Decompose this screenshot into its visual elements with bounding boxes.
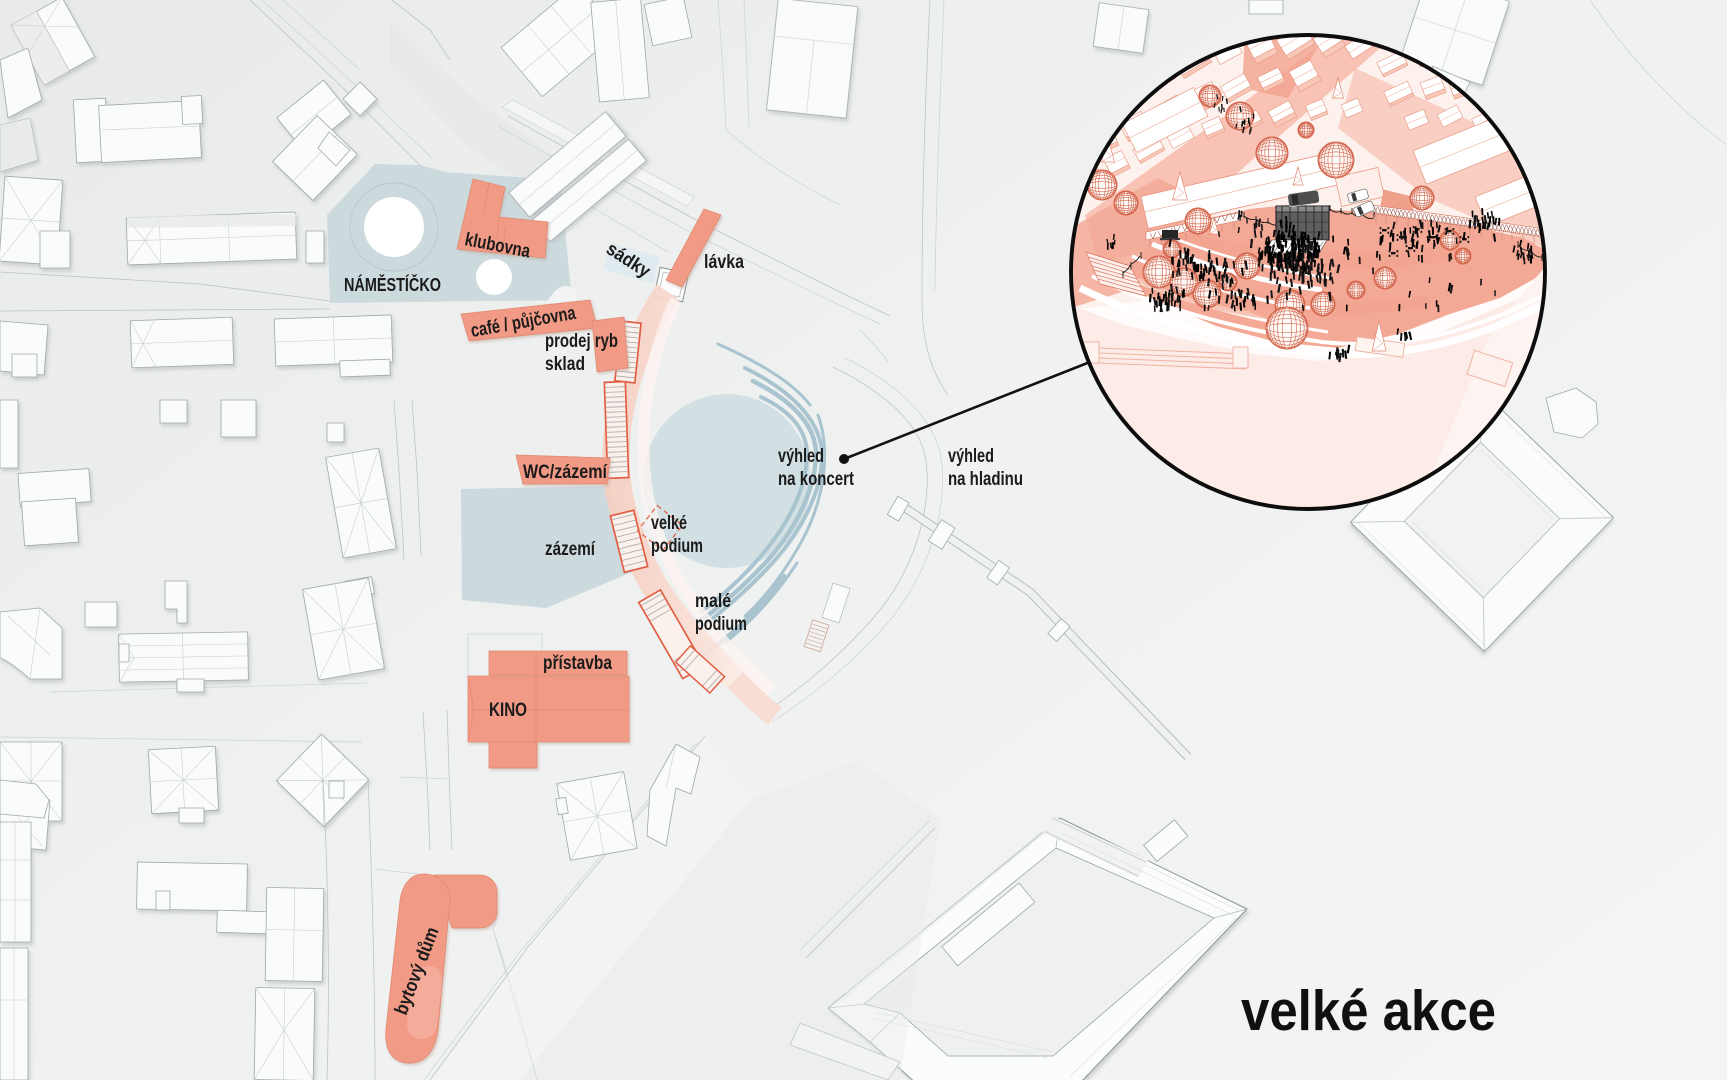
svg-text:sklad: sklad — [545, 354, 585, 375]
svg-text:výhled: výhled — [948, 446, 994, 467]
svg-text:NÁMĚSTÍČKO: NÁMĚSTÍČKO — [344, 274, 441, 295]
svg-text:výhled: výhled — [778, 446, 824, 467]
svg-text:podium: podium — [695, 614, 747, 635]
svg-text:prodej ryb: prodej ryb — [545, 331, 618, 352]
svg-text:velké: velké — [651, 513, 687, 534]
svg-text:lávka: lávka — [704, 252, 744, 273]
svg-text:KINO: KINO — [489, 700, 527, 721]
svg-text:na hladinu: na hladinu — [948, 469, 1023, 490]
svg-text:přístavba: přístavba — [543, 653, 612, 674]
svg-text:malé: malé — [695, 591, 731, 612]
svg-text:podium: podium — [651, 536, 703, 557]
svg-text:WC/zázemí: WC/zázemí — [523, 462, 608, 483]
svg-text:na koncert: na koncert — [778, 469, 855, 490]
svg-text:velké akce: velké akce — [1241, 979, 1496, 1043]
svg-text:zázemí: zázemí — [545, 539, 596, 560]
